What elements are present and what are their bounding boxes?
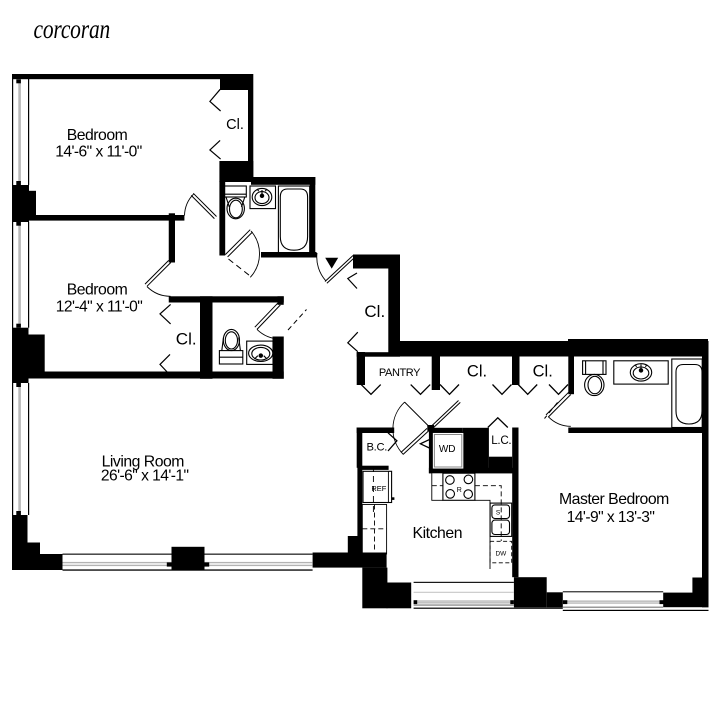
svg-text:Cl.: Cl. bbox=[226, 117, 244, 133]
svg-text:DW: DW bbox=[495, 551, 507, 558]
svg-text:WD: WD bbox=[439, 444, 456, 455]
svg-text:Master Bedroom: Master Bedroom bbox=[559, 491, 669, 508]
svg-text:Cl.: Cl. bbox=[533, 363, 553, 381]
svg-text:corcoran: corcoran bbox=[34, 14, 111, 44]
svg-text:Cl.: Cl. bbox=[364, 302, 385, 321]
svg-text:REF: REF bbox=[371, 484, 386, 493]
svg-text:B.C.: B.C. bbox=[367, 441, 388, 453]
svg-text:14'-9" x 13'-3": 14'-9" x 13'-3" bbox=[567, 509, 655, 526]
svg-text:Bedroom: Bedroom bbox=[67, 127, 128, 144]
svg-text:26'-6" x 14'-1": 26'-6" x 14'-1" bbox=[101, 468, 189, 485]
svg-text:R: R bbox=[457, 487, 462, 494]
svg-text:L.C.: L.C. bbox=[491, 434, 511, 447]
svg-text:PANTRY: PANTRY bbox=[379, 367, 421, 379]
svg-text:12'-4" x 11'-0": 12'-4" x 11'-0" bbox=[56, 299, 143, 316]
svg-text:S: S bbox=[496, 510, 501, 517]
svg-text:Kitchen: Kitchen bbox=[413, 525, 463, 542]
svg-text:14'-6" x 11'-0": 14'-6" x 11'-0" bbox=[55, 144, 142, 161]
svg-text:Cl.: Cl. bbox=[467, 363, 487, 381]
svg-text:Cl.: Cl. bbox=[176, 329, 197, 348]
svg-text:Bedroom: Bedroom bbox=[67, 282, 128, 299]
